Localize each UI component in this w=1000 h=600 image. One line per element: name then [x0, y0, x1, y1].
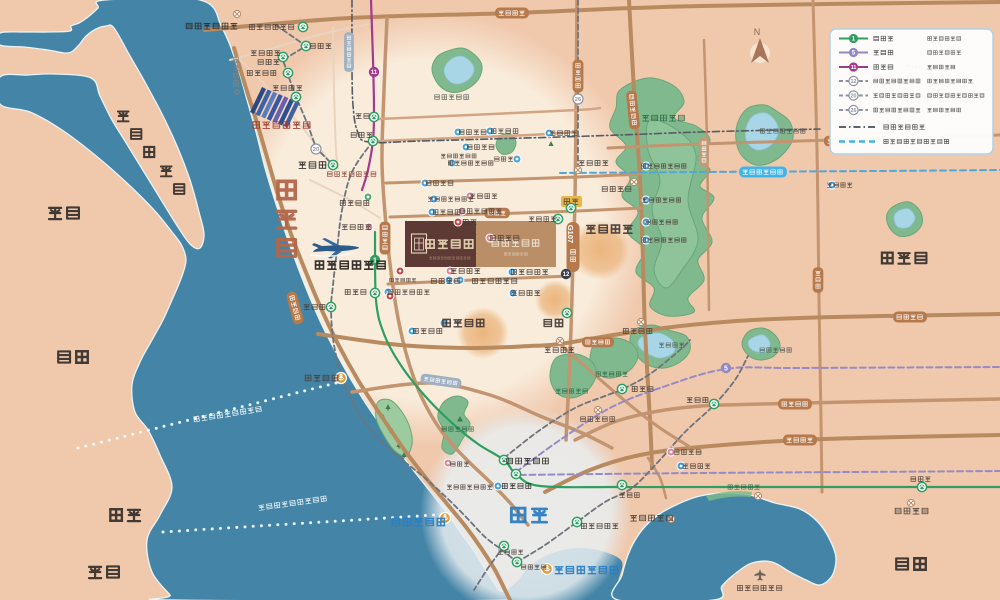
- svg-text:11: 11: [851, 65, 857, 71]
- svg-text:12: 12: [851, 79, 857, 85]
- svg-text:N: N: [754, 27, 761, 37]
- svg-text:5: 5: [724, 366, 728, 373]
- svg-text:12: 12: [563, 272, 570, 278]
- svg-text:26: 26: [575, 97, 582, 103]
- svg-text:5: 5: [852, 50, 856, 57]
- svg-text:26: 26: [851, 108, 857, 114]
- svg-text:1: 1: [852, 36, 856, 43]
- svg-text:20: 20: [851, 93, 857, 99]
- svg-text:11: 11: [371, 70, 378, 76]
- svg-text:20: 20: [313, 147, 319, 153]
- svg-text:G107: G107: [566, 225, 575, 243]
